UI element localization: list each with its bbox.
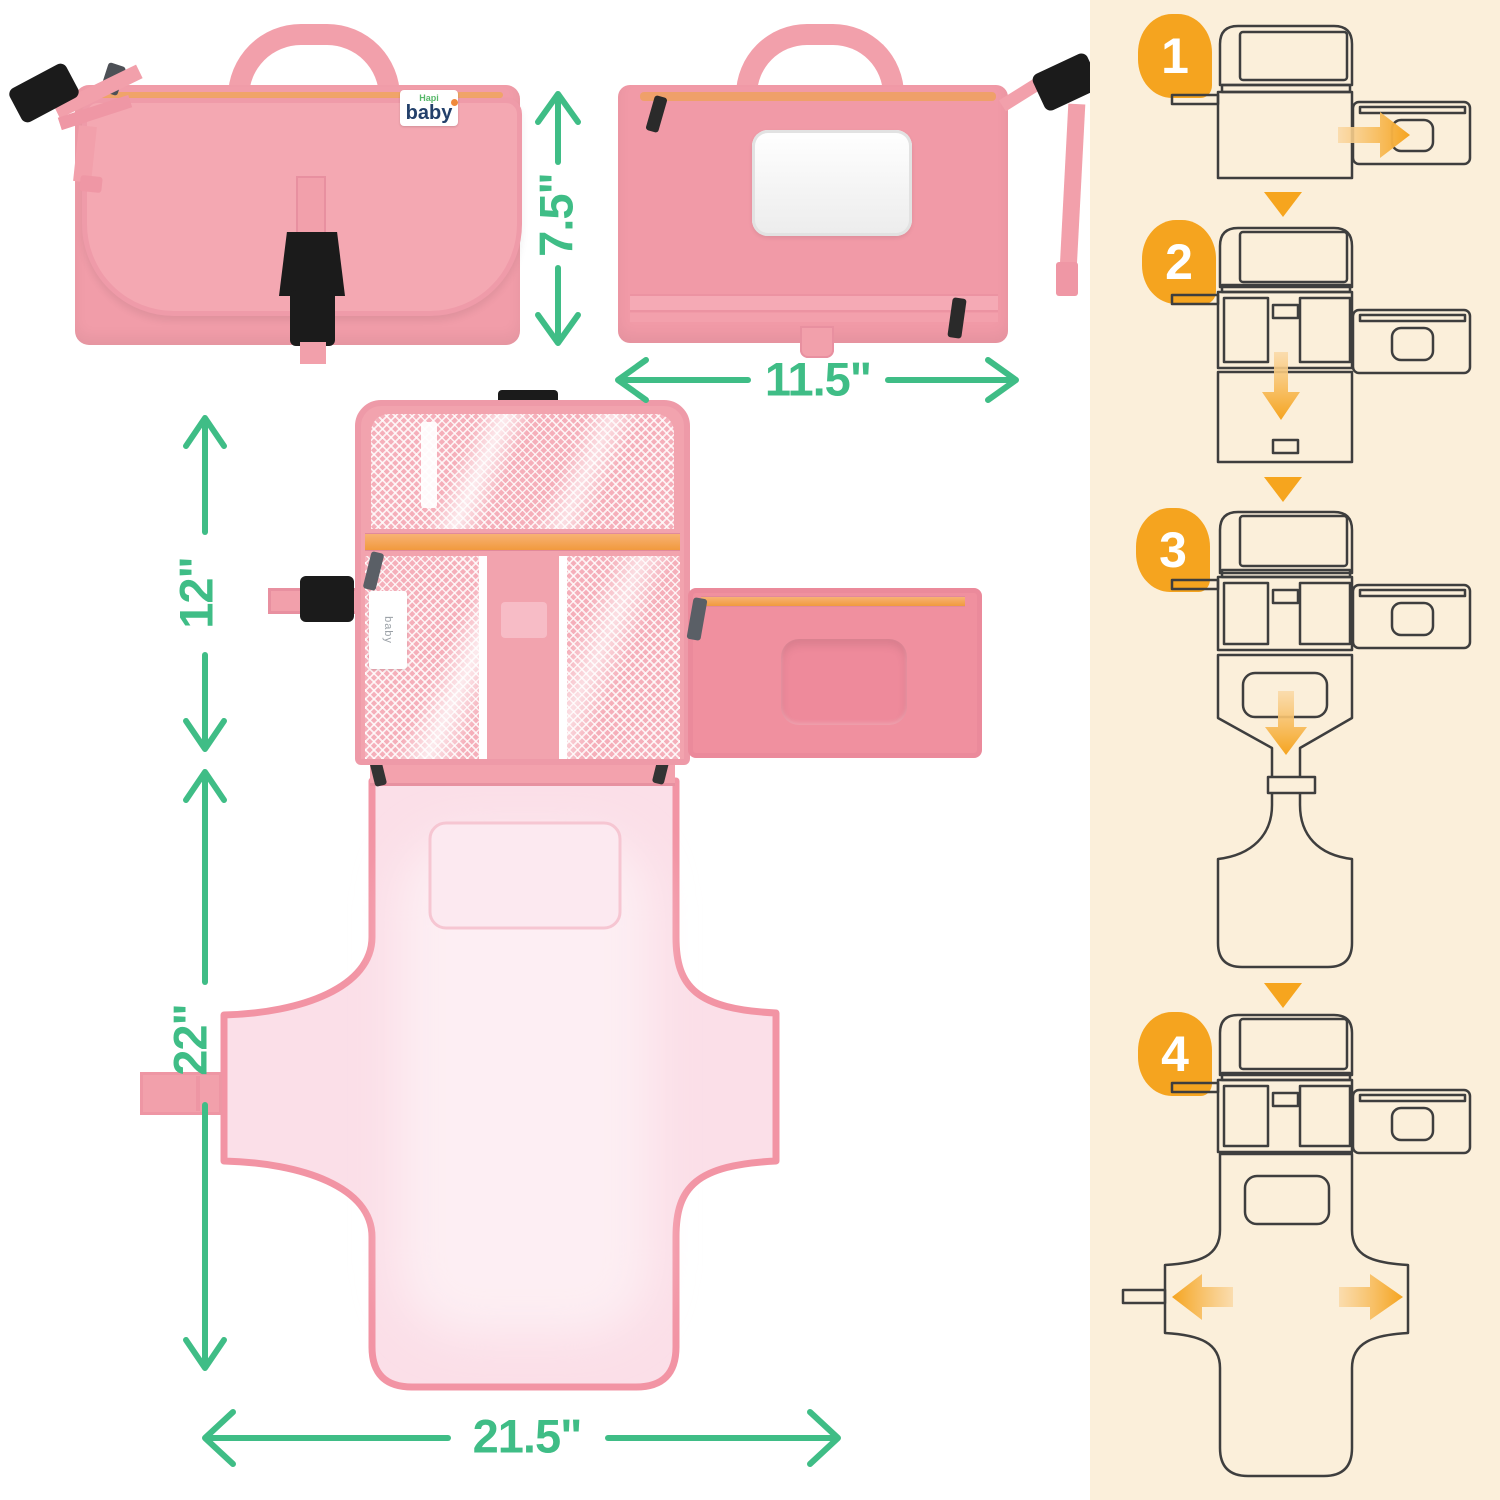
back-hanging-strap: [1060, 104, 1086, 270]
step-connector-arrow-icon: [1264, 477, 1302, 502]
step-3-diagram: [1170, 505, 1480, 975]
dimension-mat-width: 21.5": [473, 1409, 582, 1464]
brand-label: Hapi baby: [400, 90, 458, 126]
care-label-text: baby: [382, 616, 394, 644]
buckle-male-icon: [279, 232, 345, 296]
organizer-left-buckle-icon: [300, 576, 354, 622]
wipes-flap-window: [781, 639, 907, 725]
dimension-organizer-height: 12": [169, 557, 224, 629]
buckle-strap-top: [296, 176, 326, 238]
dimension-folded-width: 11.5": [765, 352, 871, 407]
step-connector-arrow-icon: [1264, 192, 1302, 217]
organizer-center-panel: [479, 556, 567, 759]
corner-strap-end: [79, 175, 103, 193]
organizer-mesh-top-tab: [421, 422, 437, 508]
brand-name-large: baby: [406, 103, 453, 123]
dimension-mat-length: 22": [163, 1004, 218, 1076]
back-hanging-strap-end: [1056, 262, 1078, 296]
organizer-zipper: [365, 534, 680, 550]
step-1-diagram: [1170, 18, 1480, 186]
step-4-diagram: [1120, 1008, 1500, 1488]
wipes-flap-zipper: [701, 597, 965, 606]
mat-side-tab-stitch: [196, 1076, 200, 1111]
organizer-velcro: [501, 602, 547, 638]
product-infographic: Hapi baby: [0, 0, 1500, 1500]
buckle-strap-bottom: [300, 342, 326, 364]
buckle-female-icon: [290, 290, 335, 346]
steps-panel: 1 2: [1090, 0, 1500, 1500]
step-2-diagram: [1170, 222, 1480, 470]
care-label: baby: [369, 591, 407, 669]
mat-side-tab: [140, 1072, 222, 1115]
dimension-folded-height: 7.5": [529, 173, 584, 257]
organizer-panel: baby: [355, 400, 690, 765]
back-bottom-band: [630, 313, 998, 322]
back-bottom-zipper-band: [630, 294, 998, 312]
wipes-flap: [688, 588, 982, 758]
wipes-window: [752, 130, 912, 236]
back-top-zipper: [640, 92, 996, 101]
changing-mat: [130, 775, 790, 1400]
organizer-mesh-top: [371, 414, 674, 529]
step-connector-arrow-icon: [1264, 983, 1302, 1008]
